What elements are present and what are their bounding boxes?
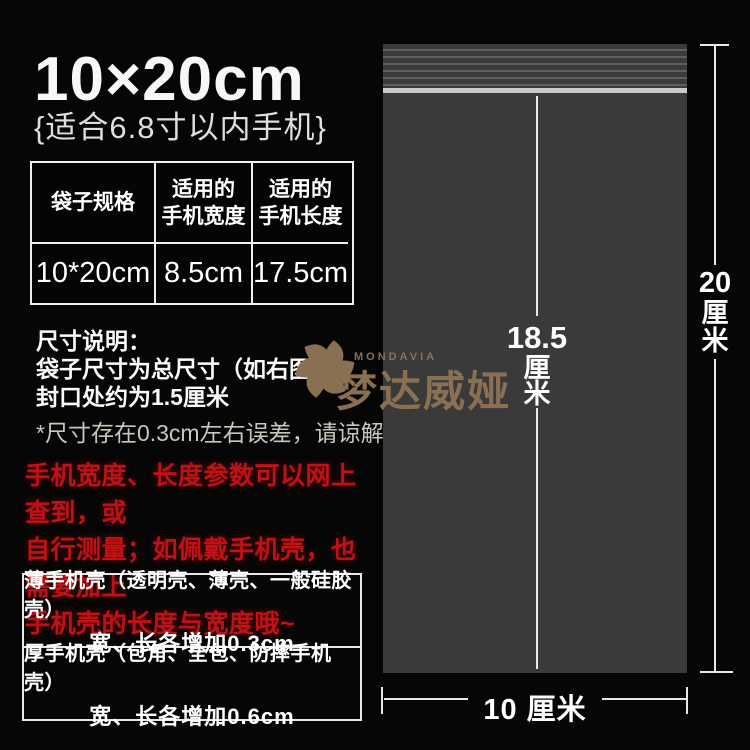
thick-case-box: 厚手机壳（包角、全包、防摔手机壳） 宽、长各增加0.6cm xyxy=(22,646,362,721)
size-notes-heading: 尺寸说明： xyxy=(36,327,384,355)
bag-width-label: 10 厘米 xyxy=(472,686,598,728)
bag-zip-line xyxy=(383,88,687,93)
inner-height-label: 18.5 厘 米 xyxy=(497,321,577,407)
phone-case-advice: 薄手机壳（透明壳、薄壳、一般硅胶壳） 宽、长各增加0.3cm 厚手机壳（包角、全… xyxy=(22,573,362,721)
spec-table: 袋子规格 适用的 手机宽度 适用的 手机长度 10*20cm 8.5cm 17.… xyxy=(30,161,354,305)
bag-illustration: 18.5 厘 米 xyxy=(383,44,687,673)
width-dimension-tick-left xyxy=(381,687,383,714)
outer-dimension-cap-bottom xyxy=(700,671,733,673)
inner-dimension-line-bottom xyxy=(536,408,538,669)
spec-table-header-phone-length: 适用的 手机长度 xyxy=(253,163,348,244)
bag-seal-stripes xyxy=(383,44,687,88)
spec-table-cell-bag-size: 10*20cm xyxy=(32,244,156,303)
product-size-infographic: 10×20cm {适合6.8寸以内手机} 袋子规格 适用的 手机宽度 适用的 手… xyxy=(0,0,750,750)
thick-case-value: 宽、长各增加0.6cm xyxy=(89,699,294,731)
width-dimension-line-right xyxy=(602,698,686,700)
inner-dimension-line-top xyxy=(536,96,538,316)
spec-table-header-bag-size: 袋子规格 xyxy=(32,163,156,244)
size-notes-line1: 袋子尺寸为总尺寸（如右图） xyxy=(36,355,384,383)
spec-table-cell-phone-length: 17.5cm xyxy=(253,244,348,303)
page-subtitle: {适合6.8寸以内手机} xyxy=(34,102,327,147)
thick-case-title: 厚手机壳（包角、全包、防摔手机壳） xyxy=(24,637,360,695)
width-dimension-tick-right xyxy=(686,687,688,714)
outer-dimension-line-top xyxy=(714,45,716,265)
size-notes-disclaimer: *尺寸存在0.3cm左右误差，请谅解 xyxy=(36,419,384,447)
size-notes: 尺寸说明： 袋子尺寸为总尺寸（如右图） 封口处约为1.5厘米 *尺寸存在0.3c… xyxy=(36,327,384,447)
thin-case-title: 薄手机壳（透明壳、薄壳、一般硅胶壳） xyxy=(24,564,360,622)
width-dimension-line-left xyxy=(384,698,468,700)
outer-height-label: 20 厘 米 xyxy=(692,267,738,355)
outer-dimension-line-bottom xyxy=(714,359,716,672)
size-notes-line2: 封口处约为1.5厘米 xyxy=(36,383,384,411)
spec-table-header-phone-width: 适用的 手机宽度 xyxy=(156,163,253,244)
spec-table-cell-phone-width: 8.5cm xyxy=(156,244,253,303)
measure-tips-line1: 手机宽度、长度参数可以网上查到，或 xyxy=(25,458,370,532)
